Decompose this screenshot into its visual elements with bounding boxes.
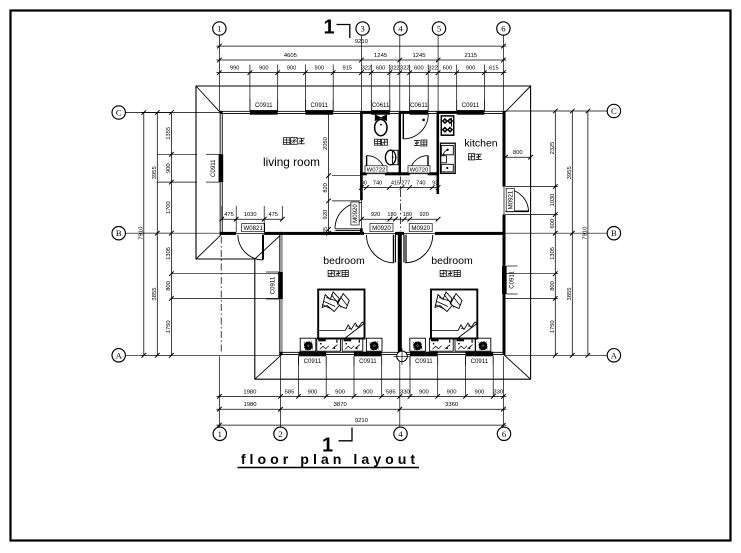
svg-text:585: 585 [285, 389, 296, 395]
svg-text:living room: living room [263, 155, 320, 169]
svg-text:W0722: W0722 [367, 168, 386, 174]
svg-text:600: 600 [376, 66, 386, 72]
svg-text:800: 800 [550, 281, 556, 291]
svg-text:322: 322 [362, 66, 372, 72]
svg-text:1750: 1750 [166, 320, 172, 333]
svg-text:1: 1 [218, 429, 222, 439]
svg-text:5: 5 [437, 24, 441, 34]
svg-text:floor plan layout: floor plan layout [241, 452, 419, 468]
svg-text:C0911: C0911 [304, 358, 322, 365]
svg-text:C0911: C0911 [255, 102, 273, 109]
svg-text:C0911: C0911 [471, 358, 489, 365]
svg-text:900: 900 [315, 66, 325, 72]
svg-text:4: 4 [398, 24, 403, 34]
svg-text:1245: 1245 [412, 53, 426, 59]
svg-text:600: 600 [550, 219, 556, 229]
svg-text:740: 740 [416, 181, 425, 187]
svg-text:900: 900 [474, 389, 485, 395]
svg-text:330: 330 [493, 389, 504, 395]
svg-text:C: C [611, 106, 617, 116]
svg-text:1355: 1355 [166, 127, 172, 140]
svg-text:920: 920 [371, 212, 381, 218]
svg-text:180: 180 [387, 212, 396, 218]
svg-text:1700: 1700 [166, 201, 172, 214]
svg-text:7910: 7910 [582, 226, 588, 240]
svg-text:6: 6 [501, 24, 506, 34]
svg-text:3870: 3870 [334, 402, 348, 408]
svg-text:475: 475 [224, 212, 234, 218]
svg-text:C: C [116, 108, 122, 118]
svg-text:990: 990 [230, 66, 240, 72]
svg-text:165: 165 [323, 227, 329, 236]
svg-text:1980: 1980 [243, 402, 257, 408]
svg-text:915: 915 [343, 66, 353, 72]
svg-text:7910: 7910 [138, 226, 144, 240]
svg-text:900: 900 [447, 389, 458, 395]
svg-text:2050: 2050 [323, 137, 329, 150]
svg-text:90: 90 [361, 181, 367, 187]
svg-text:1980: 1980 [243, 389, 257, 395]
svg-text:C0911: C0911 [462, 102, 480, 109]
svg-text:920: 920 [419, 212, 429, 218]
svg-text:1305: 1305 [166, 247, 172, 260]
svg-text:1: 1 [217, 24, 221, 34]
svg-text:9210: 9210 [355, 39, 369, 45]
svg-text:kitchen: kitchen [464, 138, 497, 150]
svg-text:900: 900 [287, 66, 297, 72]
svg-text:M0920: M0920 [411, 225, 430, 232]
svg-text:A: A [116, 350, 123, 360]
svg-text:900: 900 [259, 66, 269, 72]
svg-text:900: 900 [419, 389, 430, 395]
svg-text:330: 330 [400, 389, 411, 395]
svg-text:180: 180 [403, 212, 412, 218]
svg-text:C0911: C0911 [508, 271, 515, 289]
svg-text:820: 820 [323, 183, 329, 193]
svg-text:322: 322 [428, 66, 438, 72]
svg-text:3: 3 [360, 24, 364, 34]
svg-text:bedroom: bedroom [323, 255, 365, 267]
svg-text:1030: 1030 [550, 194, 556, 207]
svg-text:2325: 2325 [550, 142, 556, 155]
svg-text:3855: 3855 [152, 287, 158, 301]
svg-text:B: B [611, 228, 617, 238]
svg-text:322: 322 [400, 66, 410, 72]
svg-text:900: 900 [307, 389, 318, 395]
svg-text:800: 800 [166, 281, 172, 291]
svg-text:415: 415 [391, 181, 400, 187]
svg-text:2115: 2115 [464, 53, 477, 59]
svg-text:C0911: C0911 [415, 358, 433, 365]
svg-text:9210: 9210 [355, 418, 369, 424]
svg-text:3955: 3955 [152, 166, 158, 180]
svg-text:615: 615 [489, 66, 499, 72]
svg-text:C0911: C0911 [311, 102, 329, 109]
svg-text:1750: 1750 [550, 320, 556, 333]
svg-text:C0611: C0611 [372, 102, 390, 109]
svg-text:600: 600 [443, 66, 453, 72]
svg-text:3360: 3360 [445, 402, 459, 408]
svg-text:322: 322 [390, 66, 400, 72]
svg-text:900: 900 [166, 163, 172, 173]
svg-text:2: 2 [278, 429, 282, 439]
svg-text:1245: 1245 [374, 53, 388, 59]
svg-text:277: 277 [401, 181, 410, 187]
svg-text:3855: 3855 [567, 287, 573, 301]
svg-text:bedroom: bedroom [431, 255, 473, 267]
svg-text:900: 900 [363, 389, 374, 395]
svg-text:3955: 3955 [567, 166, 573, 180]
svg-text:B: B [116, 228, 122, 238]
svg-text:1: 1 [323, 16, 334, 38]
svg-text:475: 475 [268, 212, 278, 218]
svg-text:900: 900 [466, 66, 476, 72]
svg-text:C0611: C0611 [410, 102, 428, 109]
svg-text:93: 93 [432, 181, 438, 187]
svg-text:4: 4 [398, 429, 403, 439]
svg-text:M0920: M0920 [372, 225, 391, 232]
svg-text:585: 585 [386, 389, 397, 395]
svg-text:800: 800 [513, 150, 523, 156]
svg-text:740: 740 [373, 181, 382, 187]
svg-text:900: 900 [335, 389, 346, 395]
svg-text:6: 6 [502, 429, 507, 439]
svg-text:C0911: C0911 [270, 276, 277, 294]
svg-text:920: 920 [323, 210, 329, 220]
svg-text:1305: 1305 [550, 247, 556, 260]
svg-text:A: A [611, 350, 618, 360]
svg-text:C0911: C0911 [210, 159, 217, 177]
svg-text:600: 600 [414, 66, 424, 72]
svg-text:W0821: W0821 [244, 225, 264, 232]
svg-text:M0920: M0920 [352, 204, 359, 223]
svg-text:1030: 1030 [244, 212, 257, 218]
svg-text:W0720: W0720 [410, 168, 429, 174]
svg-text:4605: 4605 [284, 53, 298, 59]
svg-text:C0911: C0911 [359, 358, 377, 365]
svg-text:M0921: M0921 [508, 190, 515, 209]
